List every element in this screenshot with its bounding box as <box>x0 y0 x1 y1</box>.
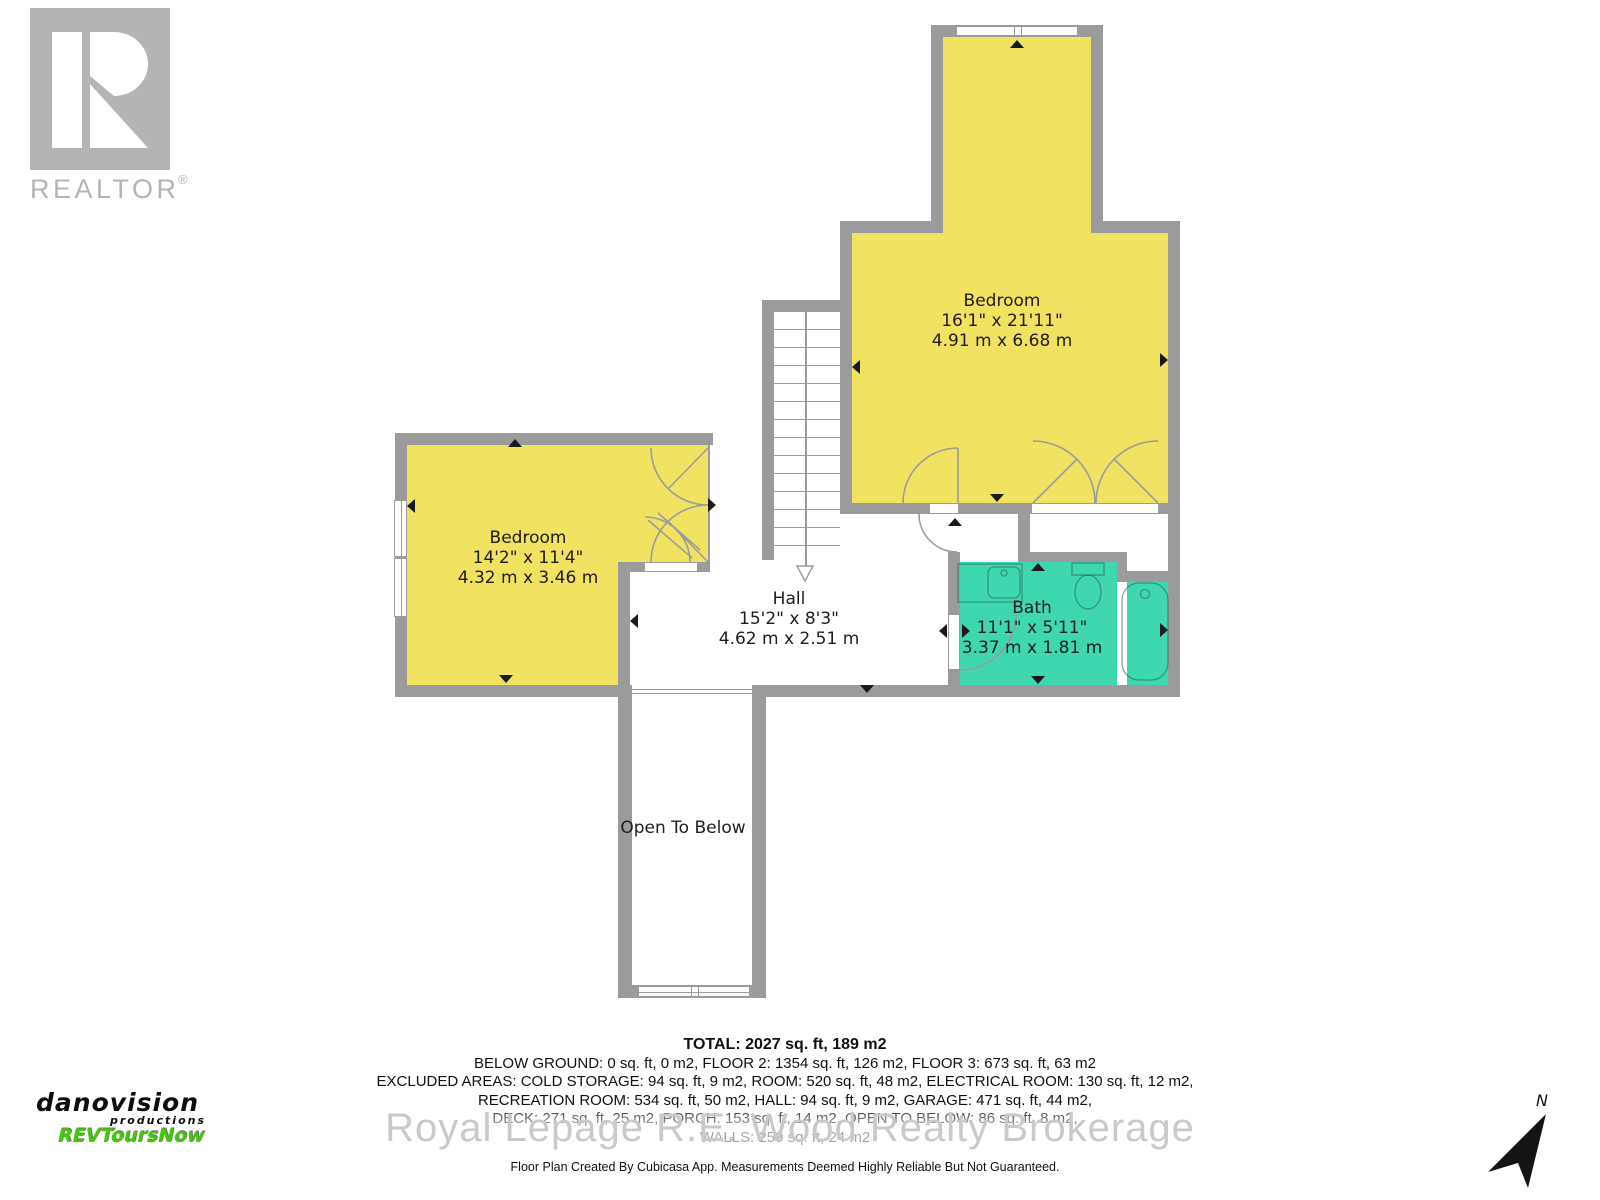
floor-plan-page: REALTOR ® <box>0 0 1600 1200</box>
wall <box>697 562 710 572</box>
wall <box>762 300 774 560</box>
realtor-logo-icon: REALTOR ® <box>30 8 200 208</box>
window <box>394 500 407 557</box>
staircase-direction-line <box>805 312 807 566</box>
room-name: Hall <box>719 589 860 609</box>
wall <box>1117 571 1180 582</box>
wall <box>958 503 1032 514</box>
brokerage-watermark: Royal Lepage R.E. Wood Realty Brokerage <box>205 1104 1375 1152</box>
door-opening <box>930 503 958 514</box>
room-dim-imperial: 15'2" x 8'3" <box>719 609 860 629</box>
room-dim-imperial: 14'2" x 11'4" <box>458 548 599 568</box>
wall <box>708 445 710 562</box>
wall <box>948 552 960 614</box>
door-opening <box>1032 503 1158 514</box>
realtor-logo-text: REALTOR <box>30 174 180 204</box>
room-dim-imperial: 11'1" x 5'11" <box>962 618 1103 638</box>
room-label-bedroom-main: Bedroom 16'1" x 21'11" 4.91 m x 6.68 m <box>932 291 1073 351</box>
room-label-open-to-below: Open To Below <box>620 818 745 838</box>
window <box>956 26 1078 36</box>
wall <box>395 433 713 445</box>
wall <box>618 562 630 697</box>
wall <box>840 221 943 233</box>
disclaimer-text: Floor Plan Created By Cubicasa App. Meas… <box>0 1160 1570 1174</box>
wall <box>931 25 943 233</box>
room-dim-metric: 4.32 m x 3.46 m <box>458 568 599 588</box>
room-name: Open To Below <box>620 818 745 838</box>
wall <box>618 562 645 572</box>
bedroom-main-alcove-floor <box>943 37 1091 233</box>
wall <box>1018 552 1125 562</box>
staircase <box>774 312 840 560</box>
wall <box>1158 503 1180 514</box>
wall <box>840 503 930 514</box>
wall <box>1018 514 1030 552</box>
window <box>638 986 750 997</box>
door-opening <box>645 562 697 572</box>
registered-trademark-icon: ® <box>178 172 188 187</box>
bedroom-main-floor <box>852 233 1168 503</box>
room-name: Bath <box>962 598 1103 618</box>
stairs-arrow-icon <box>797 566 813 581</box>
open-to-below-opening <box>632 689 752 694</box>
wall <box>948 670 960 685</box>
wall <box>1091 221 1180 233</box>
room-name: Bedroom <box>932 291 1073 311</box>
wall <box>1091 25 1103 233</box>
room-label-hall: Hall 15'2" x 8'3" 4.62 m x 2.51 m <box>719 589 860 649</box>
wall <box>395 685 632 697</box>
wall <box>752 697 766 998</box>
wall <box>1168 221 1180 697</box>
wall <box>752 685 1180 697</box>
room-dim-metric: 4.62 m x 2.51 m <box>719 629 860 649</box>
summary-line: EXCLUDED AREAS: COLD STORAGE: 94 sq. ft,… <box>0 1073 1570 1092</box>
summary-line: BELOW GROUND: 0 sq. ft, 0 m2, FLOOR 2: 1… <box>0 1055 1570 1074</box>
room-label-bath: Bath 11'1" x 5'11" 3.37 m x 1.81 m <box>962 598 1103 658</box>
bath-door-leaf <box>948 614 960 670</box>
room-dim-imperial: 16'1" x 21'11" <box>932 311 1073 331</box>
room-dim-metric: 4.91 m x 6.68 m <box>932 331 1073 351</box>
room-label-bedroom-second: Bedroom 14'2" x 11'4" 4.32 m x 3.46 m <box>458 528 599 588</box>
room-name: Bedroom <box>458 528 599 548</box>
wall <box>618 697 632 998</box>
bath-tub-nook-floor <box>1127 582 1168 685</box>
summary-total: TOTAL: 2027 sq. ft, 189 m2 <box>0 1036 1570 1055</box>
room-dim-metric: 3.37 m x 1.81 m <box>962 638 1103 658</box>
window <box>394 558 407 617</box>
wall <box>840 221 852 514</box>
